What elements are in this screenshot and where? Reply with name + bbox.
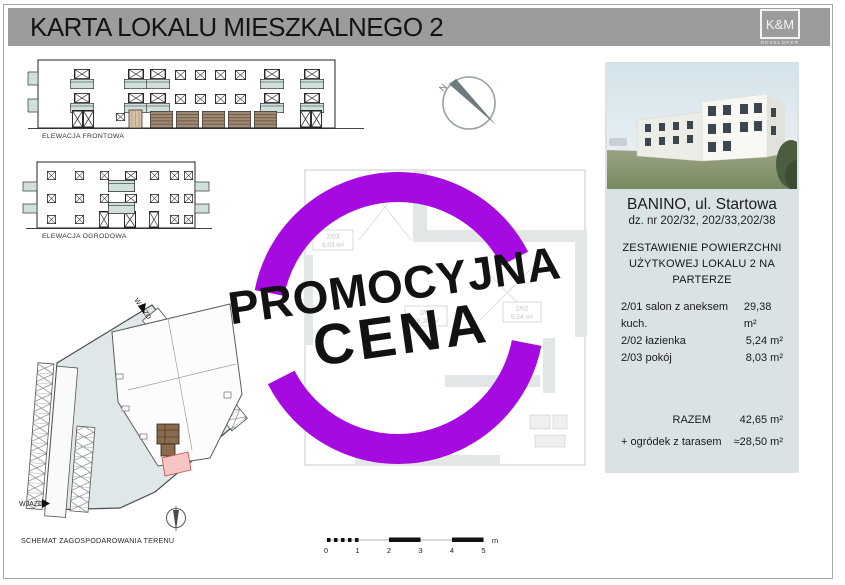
garden-elevation-drawing: ELEWACJA OGRODOWA — [20, 158, 220, 244]
north-arrow-icon — [167, 506, 186, 531]
info-panel: BANINO, ul. Startowa dz. nr 202/32, 202/… — [605, 62, 799, 473]
garden-row: + ogródek z tarasem ≈28,50 m² — [605, 436, 799, 448]
location-title: BANINO, ul. Startowa — [605, 196, 799, 214]
svg-text:3: 3 — [418, 546, 422, 555]
table-row: 2/02 łazienka 5,24 m² — [621, 333, 783, 350]
unit-card-page: KARTA LOKALU MIESZKALNEGO 2 K&M DEVELOPE… — [0, 0, 845, 585]
front-elevation-drawing: ELEWACJA FRONTOWA — [20, 56, 370, 146]
svg-text:1: 1 — [355, 546, 359, 555]
header-bar: KARTA LOKALU MIESZKALNEGO 2 K&M DEVELOPE… — [8, 8, 830, 46]
table-row: 2/01 salon z aneksem kuch. 29,38 m² — [621, 299, 783, 333]
svg-text:2: 2 — [387, 546, 391, 555]
logo-monogram: K&M — [760, 9, 800, 39]
area-table: 2/01 salon z aneksem kuch. 29,38 m² 2/02… — [605, 299, 799, 367]
svg-text:0: 0 — [324, 546, 328, 555]
total-row: RAZEM 42,65 m² — [605, 414, 799, 426]
developer-logo: K&M DEVELOPER — [760, 9, 800, 45]
svg-text:WJAZD: WJAZD — [19, 501, 43, 508]
svg-text:5: 5 — [481, 546, 485, 555]
front-elevation-label: ELEWACJA FRONTOWA — [42, 133, 124, 140]
site-plan-caption: SCHEMAT ZAGOSPODAROWANIA TERENU — [21, 536, 174, 545]
building-photo — [607, 64, 797, 189]
compass-icon: N — [436, 66, 506, 136]
north-mark: N — [437, 82, 449, 94]
logo-subtitle: DEVELOPER — [761, 40, 799, 45]
svg-text:4: 4 — [450, 546, 454, 555]
area-table-title: ZESTAWIENIE POWIERZCHNI UŻYTKOWEJ LOKALU… — [605, 241, 799, 289]
scale-bar: 0 1 2 3 4 5 m — [318, 532, 508, 562]
plot-numbers: dz. nr 202/32, 202/33,202/38 — [605, 215, 799, 227]
scale-unit: m — [492, 536, 498, 545]
page-title: KARTA LOKALU MIESZKALNEGO 2 — [30, 12, 760, 43]
table-row: 2/03 pokój 8,03 m² — [621, 350, 783, 367]
garden-elevation-label: ELEWACJA OGRODOWA — [42, 233, 127, 240]
